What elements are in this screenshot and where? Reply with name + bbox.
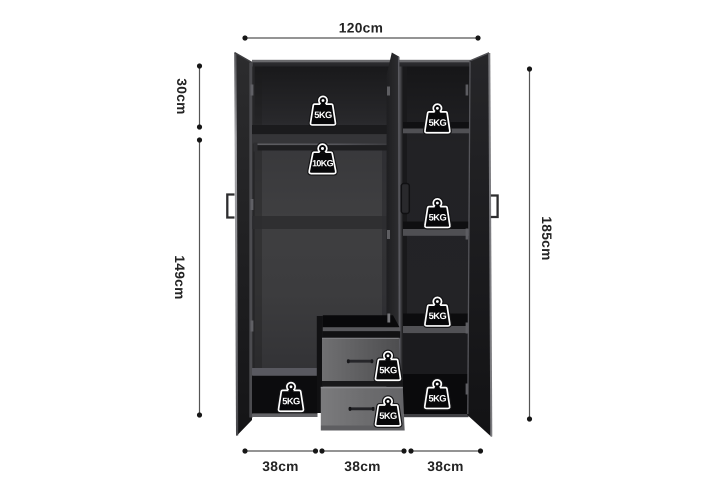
svg-text:38cm: 38cm (262, 459, 299, 474)
svg-text:30cm: 30cm (174, 78, 189, 115)
svg-text:38cm: 38cm (427, 459, 464, 474)
svg-text:38cm: 38cm (344, 459, 381, 474)
svg-text:149cm: 149cm (172, 255, 187, 299)
svg-text:185cm: 185cm (539, 216, 554, 260)
svg-text:120cm: 120cm (339, 20, 383, 35)
